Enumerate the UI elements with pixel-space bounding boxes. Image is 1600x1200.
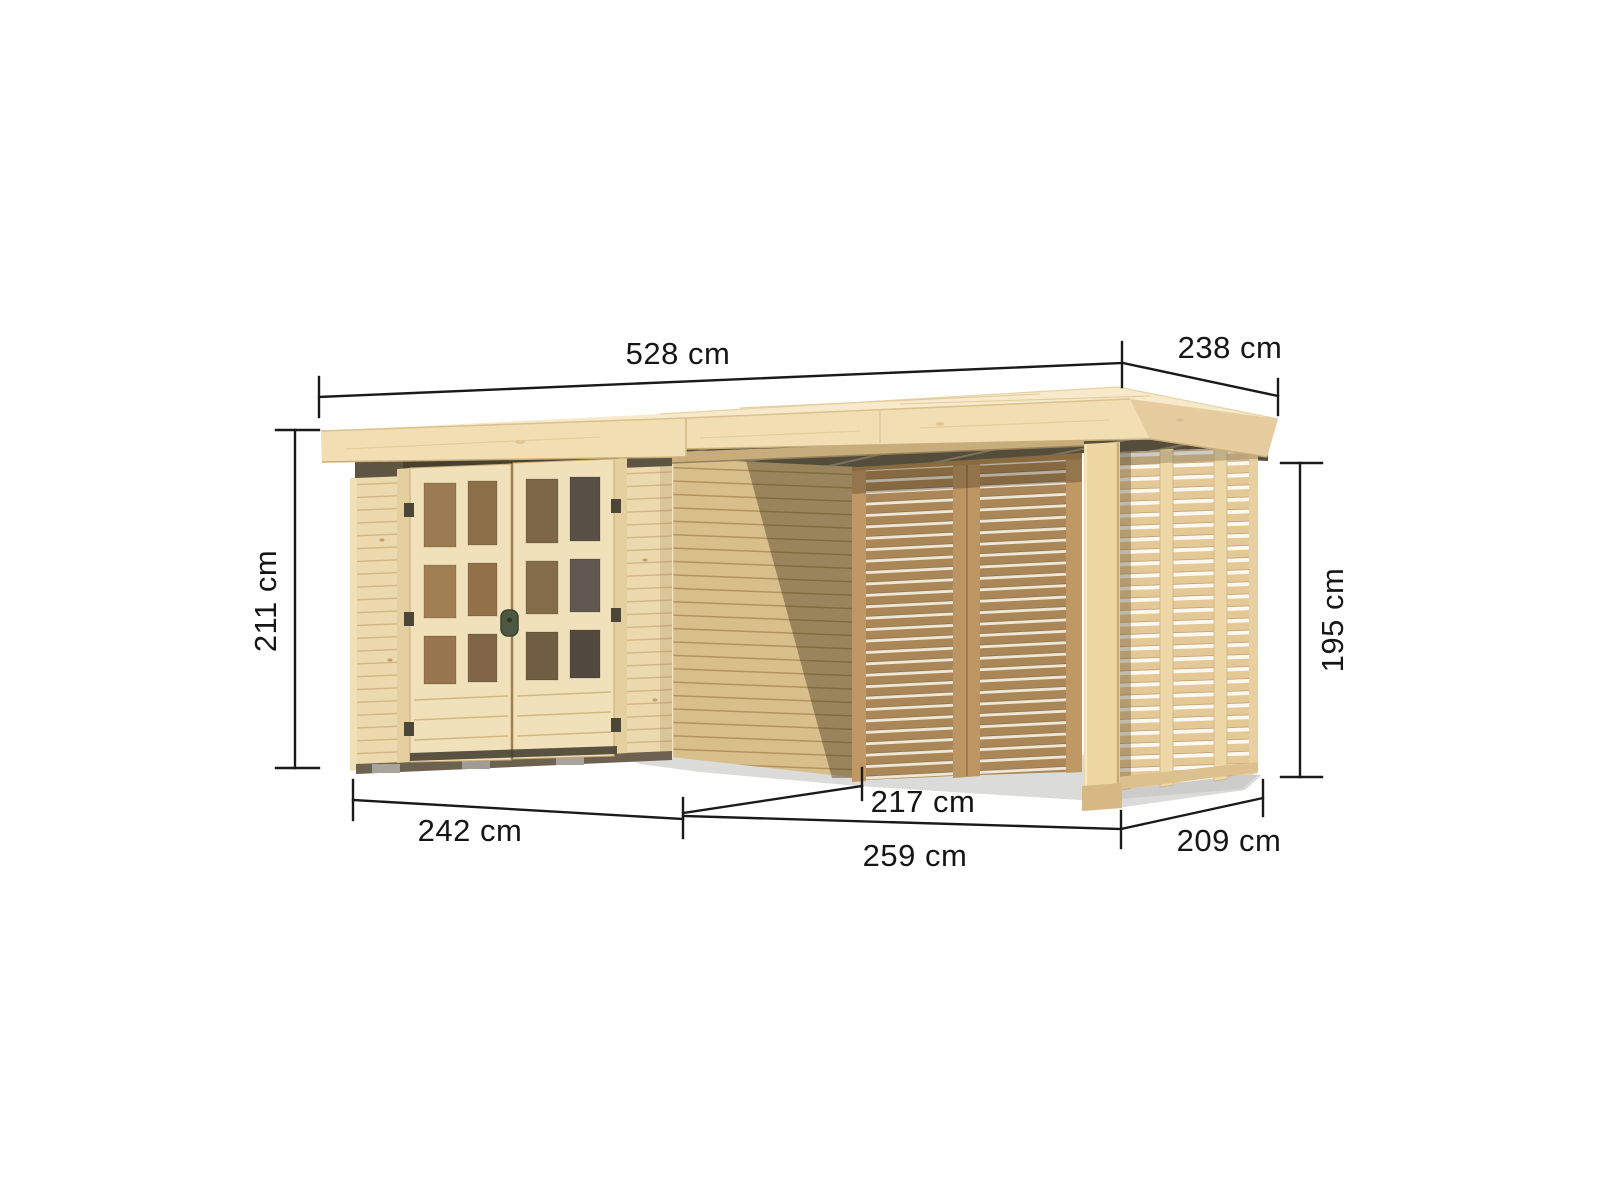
dim-label-annex-clear-width: 217 cm xyxy=(871,784,976,820)
foundation-block xyxy=(372,764,400,773)
annex-side-lattice-wall xyxy=(1117,447,1258,790)
double-door xyxy=(397,458,627,763)
lattice-panel-right xyxy=(980,453,1066,775)
lattice-panel-left xyxy=(866,459,953,780)
product-dimension-figure: 528 cm 238 cm 211 cm 195 cm 242 cm 217 c… xyxy=(0,0,1600,1200)
dim-line-overall-depth xyxy=(1123,363,1278,396)
dim-label-overall-width: 528 cm xyxy=(626,336,731,372)
dim-label-annex-front-width: 259 cm xyxy=(863,838,968,874)
shed-side-wall xyxy=(672,454,858,778)
lattice-batten xyxy=(1160,449,1173,787)
annex-back-lattice-wall xyxy=(852,447,1082,782)
shed-illustration xyxy=(0,0,1600,1200)
dim-label-overall-depth: 238 cm xyxy=(1178,330,1283,366)
dim-label-wall-height-right: 195 cm xyxy=(1315,568,1351,673)
dim-label-shed-front-width: 242 cm xyxy=(418,813,523,849)
dim-line-annex-clear-width xyxy=(683,786,862,813)
lattice-batten xyxy=(1214,448,1227,781)
door-handle xyxy=(501,610,518,636)
dim-label-annex-side-depth: 209 cm xyxy=(1177,823,1282,859)
annex-corner-post xyxy=(1082,442,1122,811)
dim-label-wall-height-left: 211 cm xyxy=(248,550,284,652)
